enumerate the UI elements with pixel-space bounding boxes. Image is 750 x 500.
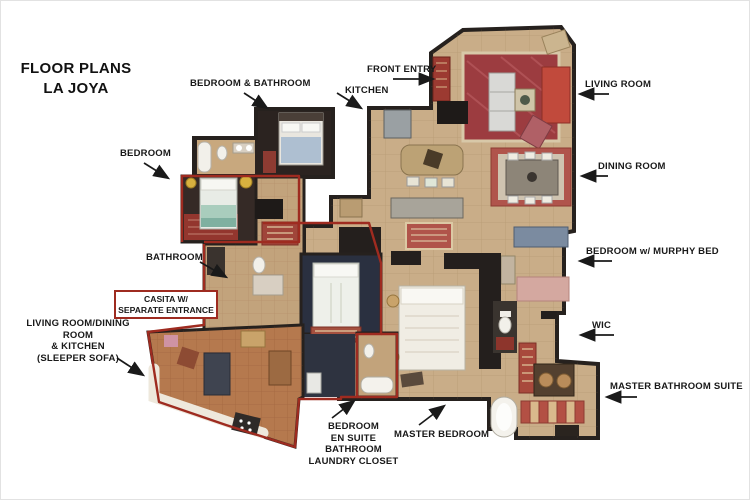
label-front-entry: FRONT ENTRY: [367, 64, 436, 76]
arrow-bedroom-ensuite: [332, 401, 354, 418]
arrow-master-bedroom: [419, 406, 444, 425]
label-bathroom: BATHROOM: [146, 252, 203, 264]
arrow-bedroom-bathroom: [244, 93, 267, 108]
page-title: FLOOR PLANS LA JOYA: [9, 59, 143, 98]
label-bedroom-murphy: BEDROOM w/ MURPHY BED: [586, 246, 719, 258]
dining-room-area: [491, 148, 571, 206]
label-dining-room: DINING ROOM: [598, 161, 666, 173]
label-casita-separate-entrance: CASITA W/ SEPARATE ENTRANCE: [114, 290, 218, 319]
label-living-room: LIVING ROOM: [585, 79, 651, 91]
arrow-bedroom-left: [144, 163, 168, 178]
label-master-bedroom: MASTER BEDROOM: [394, 429, 489, 441]
label-bedroom-bathroom: BEDROOM & BATHROOM: [190, 78, 311, 90]
label-master-bathroom: MASTER BATHROOM SUITE: [610, 381, 743, 393]
label-casita-living: LIVING ROOM/DINING ROOM & KITCHEN (SLEEP…: [13, 318, 143, 364]
label-bedroom-ensuite: BEDROOM EN SUITE BATHROOM LAUNDRY CLOSET: [301, 421, 406, 467]
bedroom-bathroom-wing: [194, 109, 333, 177]
casita-living-area: [148, 325, 303, 447]
floor-plan-page: FLOOR PLANS LA JOYA BEDROOM & BATHROOM F…: [0, 0, 750, 500]
label-kitchen: KITCHEN: [345, 85, 389, 97]
label-wic: WIC: [592, 320, 611, 332]
label-bedroom-left: BEDROOM: [120, 148, 171, 160]
